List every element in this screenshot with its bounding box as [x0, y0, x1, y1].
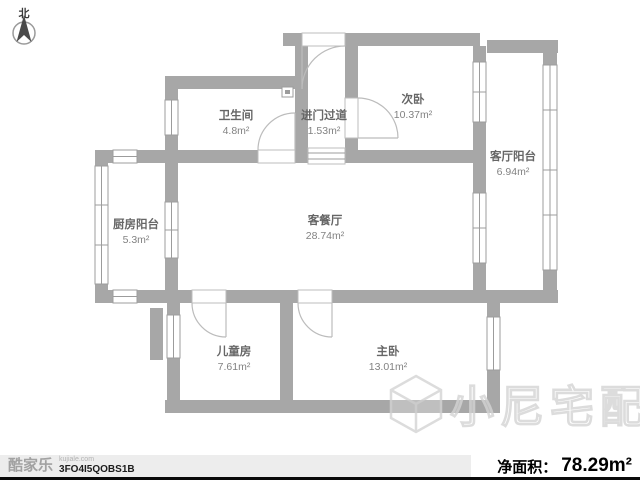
- wall-segment: [165, 89, 178, 100]
- wall-segment: [226, 290, 298, 303]
- fixture-icon: [282, 87, 293, 97]
- wall-segment: [543, 53, 557, 65]
- wall-segment: [345, 138, 358, 150]
- net-area-block: 净面积： 78.29m²: [471, 455, 640, 477]
- brand-meta: kujiale.com 3FO4I5QOBS1B: [59, 456, 135, 475]
- north-indicator: 北: [13, 6, 35, 44]
- wall-segment: [178, 150, 258, 163]
- wall-segment: [167, 303, 180, 315]
- wall-segment: [487, 290, 500, 317]
- wall-segment: [295, 150, 308, 163]
- window-kitchen-balcony-bottom: [113, 290, 137, 303]
- brand-logo: 酷家乐: [8, 456, 53, 476]
- door-entry: [302, 33, 345, 89]
- wall-segment: [150, 308, 163, 360]
- wall-segment: [345, 46, 358, 98]
- room-label-bathroom: 卫生间: [219, 108, 254, 122]
- window-kitchen-balcony-left: [95, 166, 108, 284]
- wall-segment: [473, 163, 486, 193]
- wall-segment: [165, 258, 178, 290]
- room-area-second-bedroom: 10.37m²: [394, 109, 433, 121]
- wall-segment: [165, 163, 178, 202]
- wall-segment: [95, 284, 108, 290]
- wall-segment: [345, 150, 480, 163]
- window-master-bedroom: [487, 317, 500, 370]
- wall-segment: [332, 290, 487, 303]
- room-label-living-dining: 客餐厅: [307, 213, 343, 227]
- watermark-cube-icon: [391, 376, 441, 432]
- wall-segment: [283, 33, 302, 46]
- wall-segment: [165, 290, 192, 303]
- room-area-entry-hall: 1.53m²: [308, 125, 341, 137]
- wall-segment: [473, 46, 486, 62]
- window-living-balcony-right: [543, 65, 557, 270]
- wall-segment: [543, 270, 557, 290]
- room-area-master-bedroom: 13.01m²: [369, 361, 408, 373]
- room-area-kitchen-balcony: 5.3m²: [123, 234, 150, 246]
- plan-code: 3FO4I5QOBS1B: [59, 464, 135, 475]
- window-kids-room: [167, 315, 180, 358]
- wall-segment: [167, 358, 180, 400]
- floor-plan: 小尼宅配 卫生间 4.8m² 进门过道 1.53m² 次卧 10.37m² 客厅…: [0, 0, 640, 455]
- room-label-entry-hall: 进门过道: [301, 108, 347, 122]
- wall-segment: [137, 150, 165, 163]
- door-kids-room: [192, 290, 226, 337]
- window-bathroom-left: [165, 100, 178, 135]
- room-area-living-dining: 28.74m²: [306, 230, 345, 242]
- wall-segment: [345, 33, 480, 46]
- room-area-kids-room: 7.61m²: [218, 361, 251, 373]
- wall-segment: [165, 150, 178, 163]
- wall-segment: [280, 303, 293, 400]
- watermark: 小尼宅配: [391, 376, 640, 432]
- room-label-living-balcony: 客厅阳台: [489, 149, 536, 163]
- wall-segment: [487, 40, 558, 53]
- room-label-kitchen-balcony: 厨房阳台: [113, 217, 159, 231]
- room-label-kids-room: 儿童房: [216, 344, 252, 358]
- window-kitchen-balcony-top: [113, 150, 137, 163]
- wall-segment: [95, 150, 113, 163]
- wall-segment: [473, 263, 486, 290]
- wall-segment: [165, 135, 178, 150]
- footer-brand-block: 酷家乐 kujiale.com 3FO4I5QOBS1B: [0, 456, 135, 476]
- brand-site: kujiale.com: [59, 456, 135, 464]
- door-second-bedroom: [345, 98, 398, 138]
- net-area-label: 净面积：: [497, 456, 557, 477]
- window-kitchen-balcony-pass: [165, 202, 178, 258]
- door-bathroom: [258, 113, 295, 163]
- net-area-value: 78.29m²: [561, 455, 632, 477]
- door-master-bedroom: [298, 290, 332, 337]
- room-area-living-balcony: 6.94m²: [497, 166, 530, 178]
- wall-segment: [137, 290, 165, 303]
- window-living-balcony-left: [473, 193, 486, 263]
- footer-bar: 酷家乐 kujiale.com 3FO4I5QOBS1B 净面积： 78.29m…: [0, 455, 640, 480]
- room-label-second-bedroom: 次卧: [402, 92, 425, 106]
- room-label-master-bedroom: 主卧: [377, 344, 400, 358]
- wall-segment: [95, 290, 113, 303]
- window-second-bedroom: [473, 62, 486, 122]
- floor-plan-canvas: 小尼宅配 卫生间 4.8m² 进门过道 1.53m² 次卧 10.37m² 客厅…: [0, 0, 640, 455]
- opening-hallway: [308, 148, 345, 164]
- room-area-bathroom: 4.8m²: [223, 125, 250, 137]
- watermark-text: 小尼宅配: [450, 383, 640, 432]
